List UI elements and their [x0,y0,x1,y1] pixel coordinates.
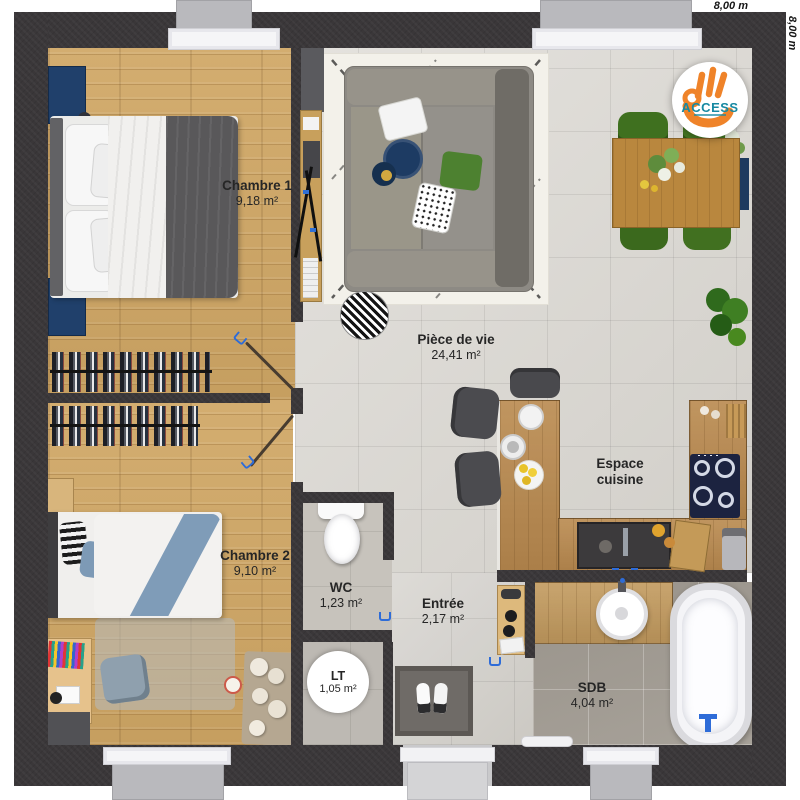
burner [693,486,713,506]
lemon [519,464,528,473]
rail-bar [50,424,200,427]
wall-left [14,12,48,786]
plant [728,328,746,346]
room-label-sdb: SDB 4,04 m² [537,680,647,710]
room-label-espace-cuisine: Espace cuisine [565,456,675,487]
room-label-chambre-1: Chambre 1 9,18 m² [197,178,317,208]
jam-jar [652,524,665,537]
floor-plan: Chambre 1 9,18 m² Pièce de vie 24,41 m² … [0,0,800,800]
lemon [528,468,537,477]
sink-faucet [623,528,628,556]
toilet-bowl [324,514,360,564]
cutting-board [669,520,711,573]
window-sill [112,764,224,800]
wall-sdb-left [525,582,535,658]
table-lemon [651,185,658,192]
bathtub [670,583,752,750]
wall-bedrooms-divider [48,393,270,403]
jam-jar [664,537,675,548]
plate [518,404,544,430]
cooktop [690,454,740,518]
burner [718,492,734,508]
svg-text:ACCESS: ACCESS [681,100,738,115]
table-flowers [658,168,671,181]
teddy-bear [249,720,265,736]
doormat [395,666,473,736]
desk-chair [99,653,151,705]
spice-jar [700,406,709,415]
window-top-1 [168,28,280,50]
books [303,258,318,298]
dimension-height: 8,00 m [786,16,798,86]
wall-wc-right [383,492,394,560]
room-label-entree: Entrée 2,17 m² [388,596,498,626]
wardrobe-rail-chambre-1 [50,350,212,396]
desk-mat [44,712,90,745]
front-door-step [407,762,488,800]
colored-pencils [47,641,85,669]
wall-lt-right [383,642,393,745]
bed-headboard [50,118,63,296]
access-hand-icon: ACCESS [672,62,748,138]
front-door-threshold [400,747,495,762]
entry-console [497,585,525,655]
sink-drain [599,540,612,553]
sink-drain [615,607,628,620]
sneaker [416,683,431,714]
access-logo: ACCESS [672,62,748,138]
spice-jar [711,410,720,419]
teddy-bear [268,668,284,684]
burner [694,460,710,476]
sneaker [433,683,448,714]
burner [715,458,735,478]
pouf [340,291,389,340]
gold-decor [381,170,392,181]
towel-rail [521,736,573,747]
teddy-bear [250,658,268,676]
wall-right [752,12,786,786]
window-sill [590,764,652,800]
teddy-bear-red [224,676,242,694]
room-label-wc: WC 1,23 m² [296,580,386,610]
wardrobe-rail-chambre-2 [50,404,200,450]
faucet-blue [620,578,625,583]
window-bottom-1 [103,747,231,765]
lemon [522,476,531,485]
sofa-pillow-green [439,151,483,192]
window-top-2 [532,28,702,50]
rail-bar [50,370,212,373]
utensil-jar [726,404,746,438]
bar-stool [510,368,560,398]
sofa-backrest [495,69,529,287]
bar-stool [450,386,501,441]
bed-duvet-white [108,116,172,298]
wall-partition [291,482,303,745]
window-bottom-2 [583,747,659,765]
wall-wc-bottom [295,630,392,642]
door-mark-sdb [489,657,501,666]
shelf-decor [303,117,319,130]
wall-partition [291,388,303,414]
table-lemon [640,180,649,189]
bath-sink [596,588,648,640]
room-label-chambre-2: Chambre 2 9,10 m² [195,548,315,578]
teddy-bear [268,700,286,718]
decor-blue-accent [310,228,316,232]
room-label-piece-de-vie: Pièce de vie 24,41 m² [386,332,526,362]
console-decor [505,610,517,622]
table-flowers [674,162,685,173]
wall-wc-top [295,492,392,503]
bed-headboard [48,512,58,618]
console-books [499,637,525,655]
teddy-bear [252,688,268,704]
table-flowers [664,148,679,163]
room-label-lt: LT 1,05 m² [307,651,369,713]
console-tray [501,589,521,599]
window-sill [176,0,252,31]
dimension-width: 8,00 m [640,0,748,12]
media-panel [301,48,324,112]
cooktop-knobs [696,454,722,457]
console-decor [503,625,515,637]
plate-center [507,441,519,453]
bar-stool [454,450,503,508]
coffee-machine [722,528,746,570]
tub-faucet-blue [699,714,717,719]
desk-lamp [50,692,62,704]
